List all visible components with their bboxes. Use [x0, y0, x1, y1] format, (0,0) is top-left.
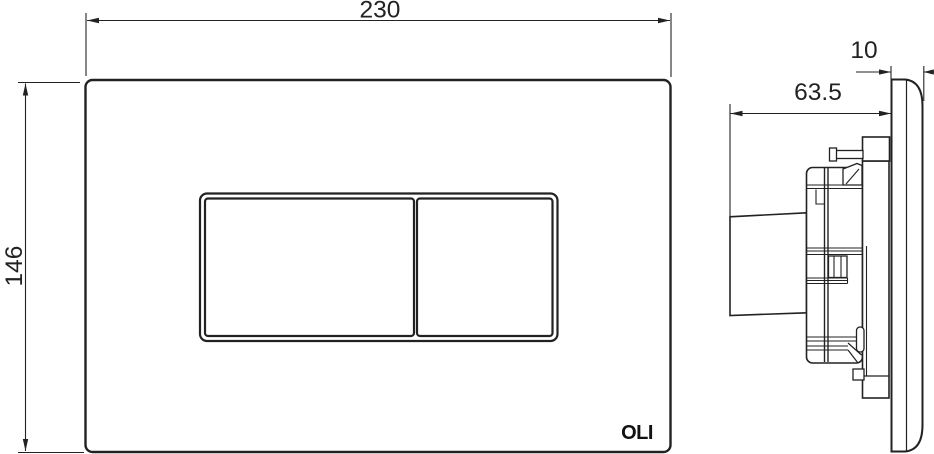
front-view: OLI 230 146	[1, 0, 671, 453]
thickness-dim-label: 10	[850, 37, 877, 64]
arrow-right-icon	[879, 111, 891, 116]
technical-drawing-page: OLI 230 146	[0, 0, 934, 454]
arrow-right-icon	[658, 18, 670, 23]
width-dimension: 230	[86, 0, 671, 77]
mounting-tab	[863, 137, 890, 161]
arrow-left-icon	[731, 111, 743, 116]
height-dim-label: 146	[1, 246, 28, 287]
depth-dim-label: 63.5	[794, 79, 842, 106]
width-dim-label: 230	[360, 0, 401, 24]
mechanism-profile	[730, 137, 890, 398]
side-view: 63.5 10	[730, 37, 934, 452]
brand-logo: OLI	[621, 422, 653, 444]
arrow-left-icon	[924, 69, 934, 74]
clip-bar	[836, 151, 863, 159]
fastener-square	[853, 369, 864, 380]
small-flush-button	[417, 199, 553, 337]
arrow-right-icon	[879, 69, 891, 74]
large-flush-button	[205, 199, 414, 337]
valve-box	[730, 213, 807, 316]
arrow-up-icon	[23, 84, 28, 96]
height-dimension: 146	[1, 83, 84, 453]
plate-profile	[892, 80, 923, 452]
side-capsule-clip	[857, 327, 865, 352]
push-rod-block	[829, 256, 848, 278]
arrow-left-icon	[87, 18, 99, 23]
flush-plate-technical-drawing: OLI 230 146	[0, 0, 934, 454]
clip-bar-cap	[830, 148, 837, 161]
arrow-down-icon	[23, 439, 28, 451]
